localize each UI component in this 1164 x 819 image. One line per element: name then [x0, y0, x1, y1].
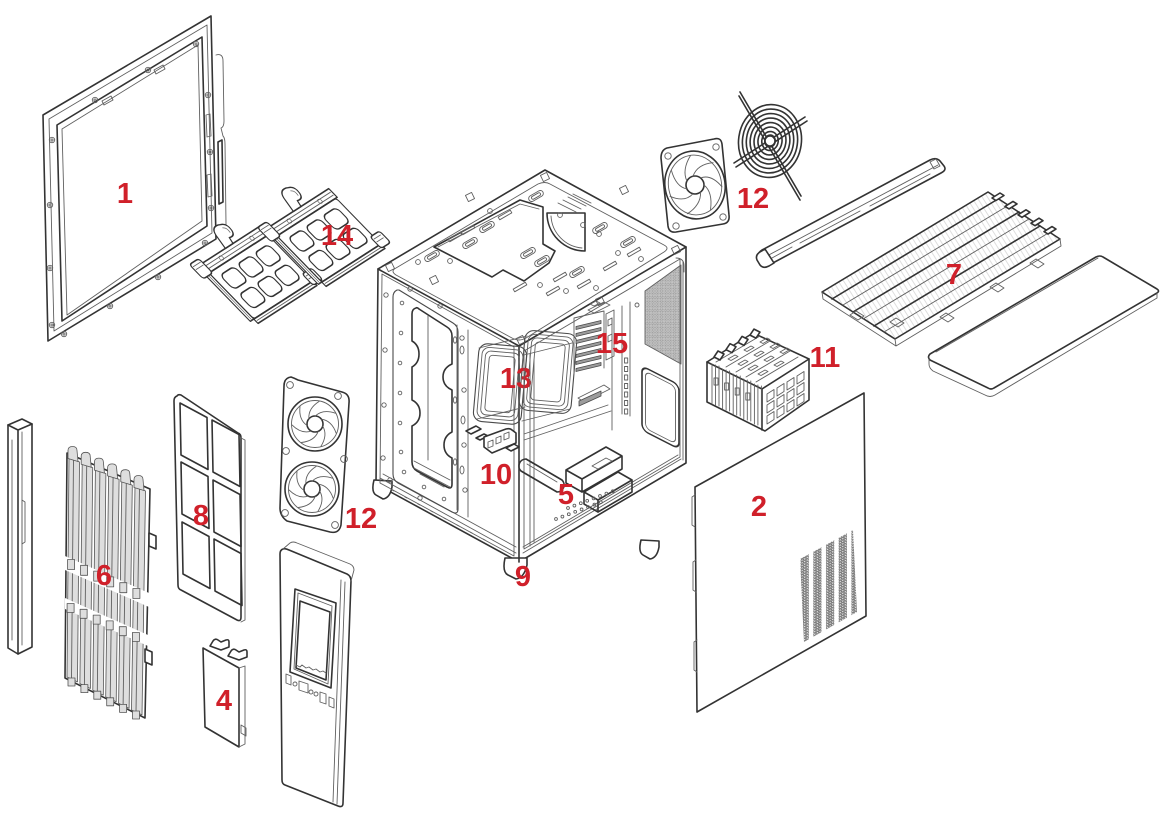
svg-text:7: 7: [946, 259, 962, 291]
svg-text:4: 4: [216, 685, 232, 717]
svg-text:9: 9: [515, 561, 531, 593]
svg-text:14: 14: [321, 220, 353, 252]
svg-text:10: 10: [480, 459, 512, 491]
svg-text:12: 12: [345, 503, 377, 535]
svg-text:11: 11: [810, 342, 841, 374]
svg-text:8: 8: [193, 500, 209, 532]
svg-text:6: 6: [96, 560, 112, 592]
svg-text:2: 2: [751, 491, 767, 523]
svg-text:5: 5: [558, 479, 574, 511]
svg-text:12: 12: [737, 183, 769, 215]
svg-text:15: 15: [596, 328, 628, 360]
svg-text:13: 13: [500, 363, 532, 395]
svg-text:1: 1: [117, 178, 133, 210]
